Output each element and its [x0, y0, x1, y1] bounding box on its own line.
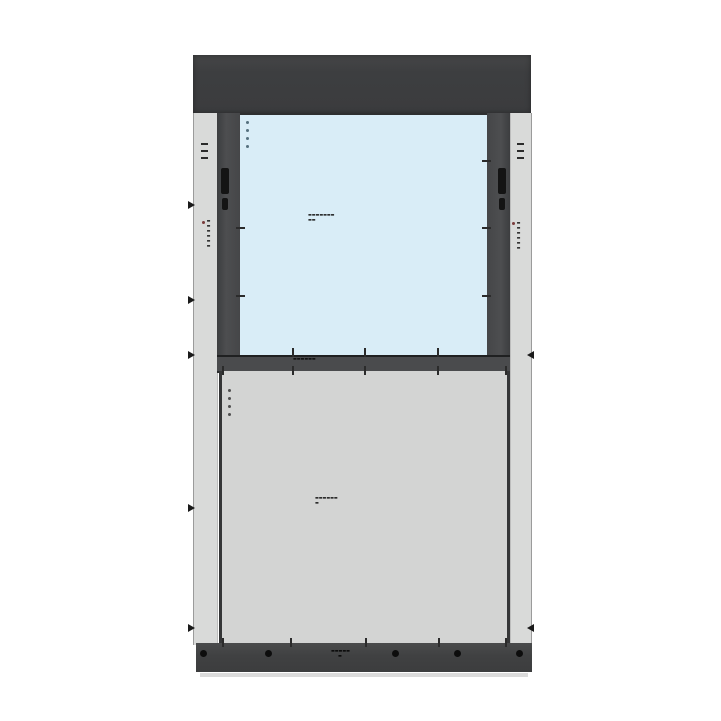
right-jamb-accent-dot — [512, 222, 515, 225]
sill-bolt-icon — [265, 650, 272, 657]
transom-mark-line1: ▬▬▬▬▬▬ — [293, 356, 316, 361]
rail-top-tick — [437, 348, 439, 357]
glass-edge-tick — [482, 227, 491, 229]
base-shadow-line — [200, 673, 528, 677]
glass-edge-tick — [482, 295, 491, 297]
left-jamb-dash — [201, 157, 208, 159]
glass-mark-line2: ▬▬ — [308, 217, 334, 222]
dimension-arrow-icon — [188, 296, 195, 304]
sill-bolt-icon — [200, 650, 207, 657]
panel-bottom-tick — [290, 638, 292, 647]
transom-mark-label: ▬▬▬▬▬▬ — [293, 356, 316, 361]
spandrel-mark-label: ▬▬▬▬▬▬ ▬ — [315, 495, 338, 505]
sill-bolt-icon — [516, 650, 523, 657]
rail-top-tick — [364, 348, 366, 357]
left-mullion-hardware2-icon — [222, 198, 228, 210]
sill-mark-label: ▬▬▬▬▬ ▬ — [331, 648, 350, 658]
right-mullion-hardware-icon — [498, 168, 506, 194]
base-sill-bar — [196, 643, 532, 672]
panel-bottom-tick — [365, 638, 367, 647]
left-jamb-dash — [201, 143, 208, 145]
right-jamb-dash — [517, 157, 524, 159]
panel-top-tick — [505, 366, 507, 375]
vision-glass — [240, 113, 487, 357]
panel-corner-fastener-dots — [228, 384, 231, 421]
glass-mark-label: ▬▬▬▬▬▬▬ ▬▬ — [308, 212, 334, 222]
dimension-arrow-icon — [188, 624, 195, 632]
left-mullion-hardware-icon — [221, 168, 229, 194]
glass-edge-tick — [236, 227, 245, 229]
head-cap-bar — [193, 55, 531, 113]
dimension-arrow-icon — [527, 624, 534, 632]
sill-bolt-icon — [454, 650, 461, 657]
panel-bottom-tick — [222, 638, 224, 647]
right-mullion-hardware2-icon — [499, 198, 505, 210]
spandrel-panel — [219, 371, 510, 643]
rail-top-tick — [292, 348, 294, 357]
left-jamb-mark-label: ▬▬▬▬▬▬ — [206, 218, 210, 248]
glass-corner-fastener-dots — [246, 116, 249, 153]
glass-edge-tick — [482, 160, 491, 162]
right-mullion — [487, 113, 510, 369]
left-mullion — [217, 113, 240, 369]
dimension-arrow-icon — [188, 504, 195, 512]
dimension-arrow-icon — [527, 351, 534, 359]
panel-top-tick — [437, 366, 439, 375]
left-jamb-dash — [201, 150, 208, 152]
glass-edge-tick — [236, 295, 245, 297]
right-jamb-mark-label: ▬▬▬▬▬▬ — [516, 220, 520, 250]
left-jamb-accent-dot — [202, 221, 205, 224]
left-jamb-strip — [193, 113, 218, 645]
dimension-arrow-icon — [188, 351, 195, 359]
spandrel-mark-line2: ▬ — [315, 500, 338, 505]
elevation-drawing: ▬▬▬▬▬▬▬ ▬▬ ▬▬▬▬▬▬ ▬▬▬▬▬▬ ▬ ▬▬▬▬▬ ▬ ▬▬▬▬▬… — [0, 0, 721, 721]
right-jamb-dash — [517, 143, 524, 145]
sill-bolt-icon — [392, 650, 399, 657]
panel-top-tick — [222, 366, 224, 375]
panel-bottom-tick — [438, 638, 440, 647]
panel-bottom-tick — [505, 638, 507, 647]
right-jamb-strip — [510, 113, 532, 645]
dimension-arrow-icon — [188, 201, 195, 209]
sill-mark-line2: ▬ — [338, 653, 350, 658]
panel-top-tick — [292, 366, 294, 375]
right-jamb-dash — [517, 150, 524, 152]
panel-top-tick — [364, 366, 366, 375]
